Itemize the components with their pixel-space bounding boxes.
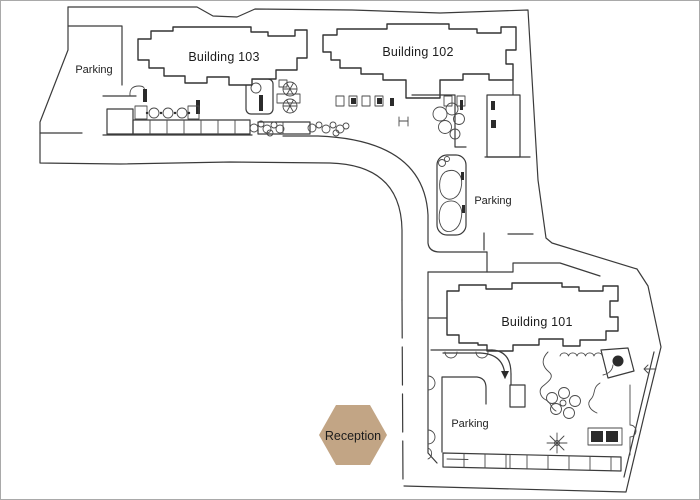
planter-row-102 — [336, 96, 465, 106]
parking-stalls-top — [107, 109, 310, 134]
wall-tick — [143, 89, 147, 102]
planter-box — [135, 106, 147, 119]
pond-strip — [437, 155, 466, 235]
reception-marker: Reception — [319, 405, 387, 465]
lot-outline — [442, 377, 486, 452]
lounger-icon — [588, 428, 622, 445]
parking-courtyard-label: Parking — [474, 195, 511, 207]
hedge-scallops — [560, 353, 603, 356]
site-plan-page: Parking — [0, 0, 700, 500]
bench-row — [277, 94, 300, 103]
parking-bottom-label: Parking — [451, 418, 488, 430]
site-plan-map: Parking — [0, 0, 700, 500]
kidney-pond — [439, 201, 462, 232]
bench-icon — [399, 117, 408, 126]
direction-arrow — [501, 371, 509, 379]
building-103-label: Building 103 — [188, 50, 259, 64]
courtyard-103 — [135, 79, 300, 119]
building-102-annex — [412, 80, 533, 250]
section-north-edge — [428, 263, 600, 276]
palm-sun-icon — [547, 433, 567, 453]
garden-edge — [589, 383, 600, 413]
chair-cluster — [547, 388, 581, 419]
tree-circle-cluster — [308, 122, 349, 136]
kidney-pond — [440, 170, 462, 199]
kiosk — [510, 385, 525, 407]
umbrella-tables — [146, 108, 190, 118]
building-102-outline — [323, 24, 516, 98]
pond-strip-outline — [437, 155, 466, 235]
spa-icon — [613, 356, 624, 367]
court-east-edge — [630, 385, 636, 455]
parking-lot-top-left: Parking — [68, 26, 144, 96]
wall-tick — [259, 95, 263, 111]
boundary-road-edge-dashed — [402, 300, 403, 486]
spa-step — [603, 365, 613, 375]
building-101-label: Building 101 — [501, 315, 572, 329]
entry-hook — [130, 86, 145, 96]
internal-road — [103, 117, 487, 272]
stall-band-bottom — [443, 453, 621, 471]
stall-dividers — [150, 120, 235, 134]
inner-diagonal — [624, 352, 654, 477]
walkway-101 — [431, 350, 525, 407]
stall-block — [107, 109, 133, 134]
parking-top-left-label: Parking — [75, 64, 112, 76]
bottom-section: Building 101 Parking — [428, 263, 656, 477]
stall-band — [133, 120, 250, 134]
building-102-label: Building 102 — [382, 45, 453, 59]
west-edge-shrubs — [428, 376, 435, 459]
building-103: Building 103 — [138, 27, 307, 85]
section-west-edge — [428, 272, 437, 463]
reception-label: Reception — [325, 429, 381, 443]
stall-step — [447, 459, 468, 460]
building-102: Building 102 — [323, 24, 516, 98]
parking-tl-edges — [68, 26, 136, 96]
